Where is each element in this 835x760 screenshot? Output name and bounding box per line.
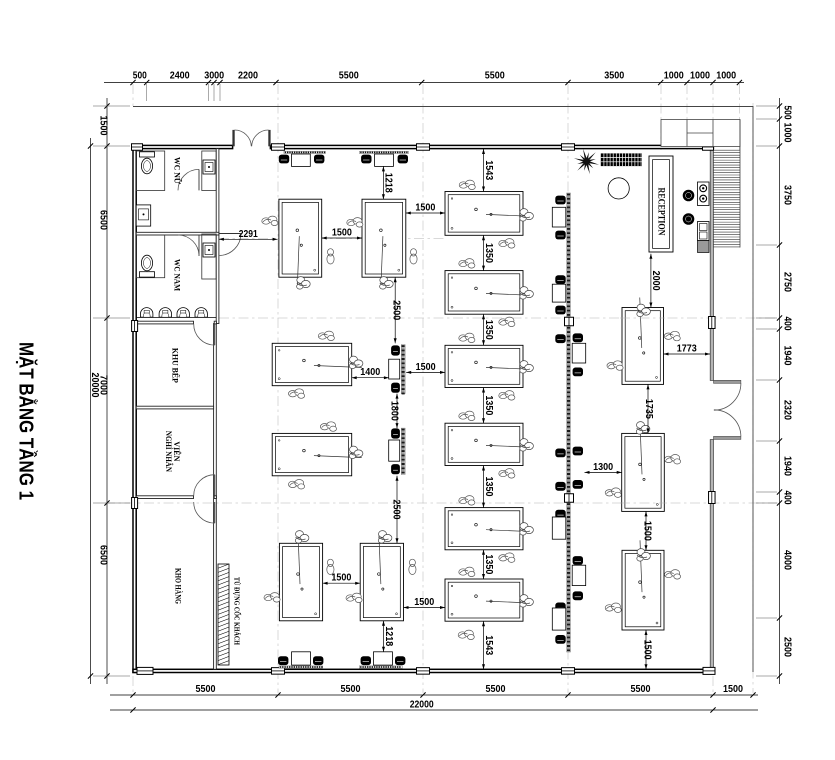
- svg-text:500: 500: [133, 71, 147, 82]
- svg-text:1500: 1500: [642, 521, 653, 542]
- svg-text:1350: 1350: [483, 243, 494, 264]
- svg-text:TỦ ĐỰNG CỐC KHÁCH: TỦ ĐỰNG CỐC KHÁCH: [233, 577, 241, 646]
- svg-text:5500: 5500: [341, 684, 362, 695]
- svg-text:20000: 20000: [89, 373, 100, 398]
- svg-text:RECEPTION: RECEPTION: [656, 188, 666, 236]
- svg-text:1000: 1000: [782, 123, 793, 144]
- svg-text:MẶT BẰNG TẦNG 1: MẶT BẰNG TẦNG 1: [15, 342, 39, 500]
- svg-text:1000: 1000: [690, 71, 711, 82]
- svg-text:22000: 22000: [410, 700, 434, 711]
- svg-text:3500: 3500: [604, 71, 625, 82]
- svg-text:1350: 1350: [483, 320, 494, 341]
- svg-text:3750: 3750: [782, 185, 793, 206]
- svg-text:KHU BẾP: KHU BẾP: [170, 348, 180, 383]
- svg-text:1300: 1300: [593, 462, 614, 473]
- svg-text:1773: 1773: [677, 344, 698, 355]
- svg-text:1500: 1500: [723, 684, 744, 695]
- svg-text:400: 400: [782, 317, 793, 331]
- svg-text:1500: 1500: [98, 116, 109, 137]
- svg-text:6500: 6500: [98, 545, 109, 566]
- svg-text:1350: 1350: [483, 395, 494, 416]
- svg-text:2320: 2320: [782, 400, 793, 421]
- svg-text:1000: 1000: [716, 71, 737, 82]
- svg-text:1940: 1940: [782, 456, 793, 477]
- svg-text:2750: 2750: [782, 272, 793, 293]
- svg-text:KHO HÀNG: KHO HÀNG: [174, 568, 184, 604]
- svg-text:4000: 4000: [782, 550, 793, 571]
- svg-text:1350: 1350: [483, 554, 494, 575]
- svg-text:2500: 2500: [391, 500, 402, 521]
- svg-text:1543: 1543: [483, 160, 494, 181]
- svg-text:1500: 1500: [642, 640, 653, 661]
- svg-text:2500: 2500: [391, 300, 402, 321]
- svg-text:1500: 1500: [414, 597, 435, 608]
- svg-text:2500: 2500: [782, 637, 793, 658]
- svg-text:1543: 1543: [483, 635, 494, 656]
- svg-text:1500: 1500: [416, 362, 437, 373]
- svg-text:5500: 5500: [486, 684, 507, 695]
- svg-text:500: 500: [782, 106, 793, 120]
- svg-text:1500: 1500: [331, 573, 352, 584]
- svg-text:2291: 2291: [239, 229, 258, 240]
- svg-text:1400: 1400: [360, 367, 381, 378]
- svg-text:1800: 1800: [389, 401, 400, 422]
- svg-text:1218: 1218: [383, 173, 394, 194]
- svg-text:2400: 2400: [170, 71, 191, 82]
- svg-text:5500: 5500: [339, 71, 360, 82]
- svg-text:1218: 1218: [383, 626, 394, 647]
- svg-text:5500: 5500: [485, 71, 506, 82]
- svg-text:VIÊN: VIÊN: [172, 441, 182, 462]
- svg-text:1500: 1500: [332, 228, 353, 239]
- svg-text:2000: 2000: [650, 271, 661, 292]
- svg-text:2200: 2200: [238, 71, 259, 82]
- svg-text:6500: 6500: [98, 210, 109, 231]
- svg-text:WC NỮ: WC NỮ: [172, 157, 182, 184]
- svg-text:1500: 1500: [415, 203, 436, 214]
- svg-text:5500: 5500: [631, 684, 652, 695]
- svg-text:3000: 3000: [204, 71, 225, 82]
- svg-text:5500: 5500: [196, 684, 217, 695]
- svg-text:1940: 1940: [782, 346, 793, 367]
- svg-text:1000: 1000: [664, 71, 685, 82]
- svg-text:1735: 1735: [643, 399, 654, 420]
- svg-text:1350: 1350: [483, 477, 494, 498]
- svg-text:400: 400: [782, 491, 793, 505]
- svg-text:WC NAM: WC NAM: [172, 259, 182, 291]
